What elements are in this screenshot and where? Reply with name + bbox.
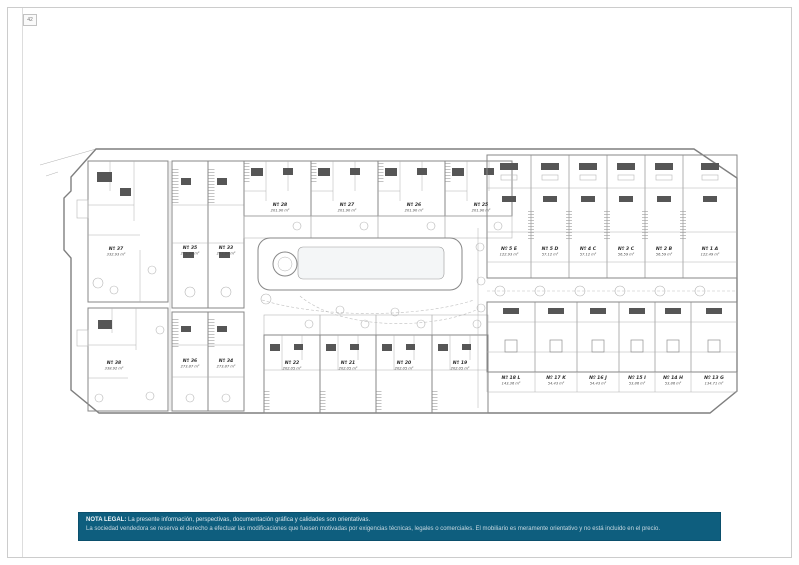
svg-text:273.87 m²: 273.87 m²	[181, 365, 200, 369]
unit-label: Nº 28201.90 m²	[271, 202, 290, 213]
unit-label: Nº 17 K54.43 m²	[546, 375, 566, 386]
svg-text:57.12 m²: 57.12 m²	[580, 253, 597, 257]
svg-text:273.84 m²: 273.84 m²	[181, 252, 200, 256]
svg-text:Nº 36: Nº 36	[183, 358, 198, 364]
legal-note-line2: La sociedad vendedora se reserva el dere…	[86, 525, 713, 534]
unit-label: Nº 19202.05 m²	[451, 360, 470, 371]
svg-text:53.86 m²: 53.86 m²	[665, 382, 682, 386]
svg-text:Nº 35: Nº 35	[183, 245, 197, 251]
site-plan: Nº 37332.93 m² Nº 35273.84 m² Nº 33273.8…	[0, 0, 799, 565]
svg-text:201.90 m²: 201.90 m²	[472, 209, 491, 213]
svg-text:Nº 22: Nº 22	[285, 360, 299, 366]
unit-label: Nº 20202.05 m²	[395, 360, 414, 371]
unit-label: Nº 22202.05 m²	[283, 360, 302, 371]
unit-label: Nº 37332.93 m²	[107, 246, 126, 257]
unit-label: Nº 27201.90 m²	[338, 202, 357, 213]
unit-label: Nº 21202.05 m²	[339, 360, 358, 371]
svg-text:Nº 33: Nº 33	[219, 245, 233, 251]
svg-text:Nº 38: Nº 38	[107, 360, 122, 366]
svg-text:Nº 14 H: Nº 14 H	[663, 375, 683, 381]
unit-label: Nº 34273.87 m²	[217, 358, 236, 369]
svg-text:Nº 1 A: Nº 1 A	[702, 246, 719, 252]
unit-label: Nº 16 J54.43 m²	[589, 375, 607, 386]
svg-text:Nº 34: Nº 34	[219, 358, 233, 364]
svg-text:Nº 18 L: Nº 18 L	[502, 375, 521, 381]
svg-text:202.05 m²: 202.05 m²	[451, 367, 470, 371]
svg-text:53.86 m²: 53.86 m²	[629, 382, 646, 386]
unit-label: Nº 2 B56.59 m²	[656, 246, 673, 257]
svg-text:Nº 19: Nº 19	[453, 360, 467, 366]
legal-note-title: NOTA LEGAL:	[86, 517, 126, 523]
svg-text:54.43 m²: 54.43 m²	[548, 382, 565, 386]
unit-label: Nº 5 E122.93 m²	[500, 246, 519, 257]
svg-text:332.93 m²: 332.93 m²	[107, 253, 126, 257]
svg-text:Nº 13 G: Nº 13 G	[704, 375, 724, 381]
svg-text:Nº 26: Nº 26	[407, 202, 422, 208]
svg-text:Nº 17 K: Nº 17 K	[546, 375, 566, 381]
unit-label: Nº 38338.92 m²	[105, 360, 124, 371]
svg-text:143.36 m²: 143.36 m²	[502, 382, 521, 386]
brochure-page: 42	[0, 0, 799, 565]
svg-text:122.49 m²: 122.49 m²	[701, 253, 720, 257]
svg-text:Nº 5 E: Nº 5 E	[501, 246, 518, 252]
unit-label: Nº 18 L143.36 m²	[502, 375, 521, 386]
svg-text:202.05 m²: 202.05 m²	[283, 367, 302, 371]
unit-label: Nº 1 A122.49 m²	[701, 246, 720, 257]
svg-text:54.43 m²: 54.43 m²	[590, 382, 607, 386]
svg-text:Nº 21: Nº 21	[341, 360, 355, 366]
unit-label: Nº 4 C57.12 m²	[580, 246, 597, 257]
svg-text:56.59 m²: 56.59 m²	[656, 253, 673, 257]
svg-text:201.90 m²: 201.90 m²	[338, 209, 357, 213]
svg-text:Nº 4 C: Nº 4 C	[580, 246, 597, 252]
svg-text:57.12 m²: 57.12 m²	[542, 253, 559, 257]
svg-text:273.87 m²: 273.87 m²	[217, 365, 236, 369]
svg-text:Nº 28: Nº 28	[273, 202, 288, 208]
svg-text:273.84 m²: 273.84 m²	[217, 252, 236, 256]
svg-text:Nº 25: Nº 25	[474, 202, 488, 208]
legal-note: NOTA LEGAL: La presente información, per…	[78, 512, 721, 541]
svg-text:202.05 m²: 202.05 m²	[395, 367, 414, 371]
svg-text:202.05 m²: 202.05 m²	[339, 367, 358, 371]
svg-text:Nº 16 J: Nº 16 J	[589, 375, 607, 381]
unit-label: Nº 25201.90 m²	[472, 202, 491, 213]
unit-label: Nº 3 C56.59 m²	[618, 246, 635, 257]
svg-text:Nº 27: Nº 27	[340, 202, 355, 208]
unit-label: Nº 5 D57.12 m²	[542, 246, 559, 257]
svg-text:Nº 15 I: Nº 15 I	[628, 375, 646, 381]
unit-label: Nº 36273.87 m²	[181, 358, 200, 369]
svg-text:Nº 3 C: Nº 3 C	[618, 246, 635, 252]
site-outline	[40, 149, 737, 413]
unit-label: Nº 26201.90 m²	[405, 202, 424, 213]
svg-text:338.92 m²: 338.92 m²	[105, 367, 124, 371]
svg-text:56.59 m²: 56.59 m²	[618, 253, 635, 257]
svg-text:Nº 20: Nº 20	[397, 360, 412, 366]
legal-note-line1: La presente información, perspectivas, d…	[128, 517, 370, 523]
unit-label: Nº 35273.84 m²	[181, 245, 200, 256]
svg-text:201.90 m²: 201.90 m²	[271, 209, 290, 213]
unit-label: Nº 13 G134.71 m²	[704, 375, 724, 386]
unit-label: Nº 15 I53.86 m²	[628, 375, 646, 386]
unit-label: Nº 14 H53.86 m²	[663, 375, 683, 386]
svg-text:201.90 m²: 201.90 m²	[405, 209, 424, 213]
svg-text:Nº 2 B: Nº 2 B	[656, 246, 673, 252]
svg-text:Nº 5 D: Nº 5 D	[542, 246, 559, 252]
svg-text:134.71 m²: 134.71 m²	[705, 382, 724, 386]
legal-note-first-line: NOTA LEGAL: La presente información, per…	[86, 516, 713, 525]
svg-text:Nº 37: Nº 37	[109, 246, 124, 252]
svg-text:122.93 m²: 122.93 m²	[500, 253, 519, 257]
unit-label: Nº 33273.84 m²	[217, 245, 236, 256]
